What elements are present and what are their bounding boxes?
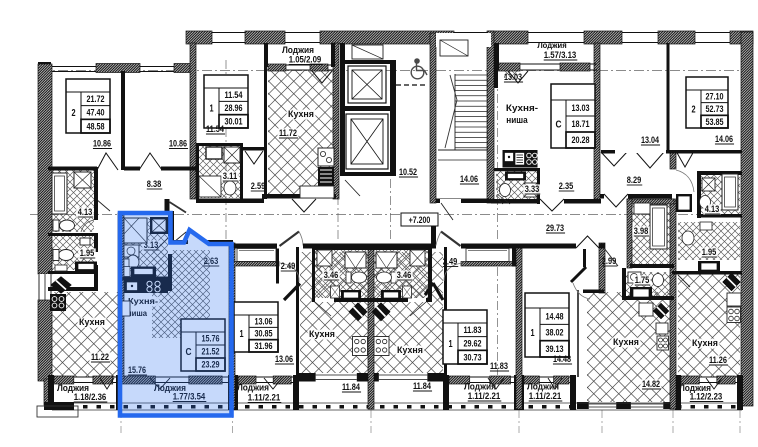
svg-text:1.18/2.36: 1.18/2.36 bbox=[74, 392, 107, 402]
svg-text:Кухня: Кухня bbox=[397, 345, 423, 355]
svg-text:4.13: 4.13 bbox=[78, 207, 92, 217]
svg-text:30.01: 30.01 bbox=[224, 117, 242, 127]
svg-text:10.86: 10.86 bbox=[93, 139, 111, 149]
svg-text:Кухня: Кухня bbox=[288, 109, 314, 119]
svg-text:1: 1 bbox=[448, 338, 452, 350]
svg-text:14.82: 14.82 bbox=[642, 379, 660, 389]
svg-text:31.96: 31.96 bbox=[254, 341, 272, 351]
svg-text:2.49: 2.49 bbox=[281, 261, 295, 271]
svg-text:11.84: 11.84 bbox=[342, 382, 361, 392]
svg-text:Кухня: Кухня bbox=[309, 329, 335, 339]
svg-text:14.06: 14.06 bbox=[715, 134, 733, 144]
svg-text:1.95: 1.95 bbox=[80, 248, 94, 258]
svg-text:11.83: 11.83 bbox=[490, 361, 508, 371]
svg-text:11.26: 11.26 bbox=[709, 355, 727, 365]
svg-text:Кухня: Кухня bbox=[79, 317, 105, 327]
svg-text:1.11/2.21: 1.11/2.21 bbox=[468, 391, 501, 401]
svg-text:Кухня-: Кухня- bbox=[506, 103, 538, 113]
svg-text:2: 2 bbox=[71, 107, 75, 119]
svg-text:10.86: 10.86 bbox=[169, 139, 187, 149]
svg-text:13.06: 13.06 bbox=[275, 354, 293, 364]
svg-text:Лоджия: Лоджия bbox=[237, 383, 269, 393]
svg-text:1.05/2.09: 1.05/2.09 bbox=[289, 55, 322, 65]
svg-text:29.62: 29.62 bbox=[463, 339, 481, 349]
svg-text:Лоджия: Лоджия bbox=[527, 382, 559, 392]
svg-text:Кухня: Кухня bbox=[692, 338, 718, 348]
svg-text:3.98: 3.98 bbox=[634, 226, 648, 236]
svg-text:Лоджия: Лоджия bbox=[282, 45, 314, 55]
svg-text:4.13: 4.13 bbox=[705, 204, 719, 214]
svg-text:2: 2 bbox=[691, 104, 695, 116]
svg-text:14.06: 14.06 bbox=[460, 174, 478, 184]
svg-text:11.72: 11.72 bbox=[279, 128, 297, 138]
svg-text:2.35: 2.35 bbox=[559, 181, 573, 191]
svg-text:ниша: ниша bbox=[506, 115, 528, 125]
svg-text:2.49: 2.49 bbox=[443, 257, 457, 267]
svg-text:30.85: 30.85 bbox=[254, 329, 272, 339]
svg-text:38.02: 38.02 bbox=[545, 328, 563, 338]
svg-text:1.11/2.21: 1.11/2.21 bbox=[248, 393, 281, 403]
svg-text:13.04: 13.04 bbox=[641, 135, 660, 145]
svg-text:+7.200: +7.200 bbox=[409, 215, 431, 225]
svg-text:2.59: 2.59 bbox=[251, 181, 265, 191]
svg-text:8.29: 8.29 bbox=[627, 175, 641, 185]
svg-text:Кухня: Кухня bbox=[613, 337, 639, 347]
svg-text:13.06: 13.06 bbox=[254, 316, 272, 326]
svg-text:29.73: 29.73 bbox=[546, 223, 564, 233]
svg-text:10.52: 10.52 bbox=[399, 167, 417, 177]
svg-text:1.95: 1.95 bbox=[702, 247, 716, 257]
svg-text:3.46: 3.46 bbox=[397, 270, 411, 280]
svg-text:3.46: 3.46 bbox=[324, 270, 338, 280]
svg-text:1.12/2.23: 1.12/2.23 bbox=[690, 392, 723, 402]
svg-text:1.75: 1.75 bbox=[635, 275, 649, 285]
svg-text:14.48: 14.48 bbox=[553, 354, 571, 364]
svg-text:47.40: 47.40 bbox=[86, 108, 104, 118]
svg-text:11.83: 11.83 bbox=[463, 325, 481, 335]
svg-text:28.96: 28.96 bbox=[224, 103, 242, 113]
svg-text:20.28: 20.28 bbox=[571, 135, 589, 145]
svg-text:8.38: 8.38 bbox=[147, 179, 161, 189]
svg-text:Лоджия: Лоджия bbox=[537, 40, 566, 50]
svg-text:11.22: 11.22 bbox=[91, 352, 109, 362]
svg-text:1.11/2.21: 1.11/2.21 bbox=[529, 391, 562, 401]
svg-text:30.73: 30.73 bbox=[463, 352, 481, 362]
svg-text:13.03: 13.03 bbox=[504, 72, 522, 82]
svg-text:11.84: 11.84 bbox=[413, 381, 432, 391]
svg-text:1: 1 bbox=[239, 328, 243, 340]
svg-text:11.54: 11.54 bbox=[206, 124, 225, 134]
svg-text:1: 1 bbox=[209, 103, 213, 115]
svg-text:48.58: 48.58 bbox=[86, 121, 104, 131]
svg-text:52.73: 52.73 bbox=[705, 104, 723, 114]
svg-text:1.57/3.13: 1.57/3.13 bbox=[544, 50, 577, 60]
svg-text:3.11: 3.11 bbox=[223, 171, 237, 181]
svg-text:3.33: 3.33 bbox=[525, 184, 539, 194]
svg-text:18.71: 18.71 bbox=[571, 119, 589, 129]
svg-text:1: 1 bbox=[530, 327, 534, 339]
svg-text:21.72: 21.72 bbox=[86, 94, 104, 104]
svg-text:Лоджия: Лоджия bbox=[464, 382, 496, 392]
svg-text:11.54: 11.54 bbox=[224, 90, 243, 100]
svg-text:39.13: 39.13 bbox=[545, 344, 563, 354]
svg-text:С: С bbox=[555, 119, 561, 131]
svg-text:53.85: 53.85 bbox=[705, 117, 723, 127]
svg-text:14.48: 14.48 bbox=[545, 311, 563, 321]
svg-text:2.99: 2.99 bbox=[602, 256, 616, 266]
svg-text:13.03: 13.03 bbox=[571, 103, 589, 113]
svg-text:27.10: 27.10 bbox=[705, 92, 723, 102]
